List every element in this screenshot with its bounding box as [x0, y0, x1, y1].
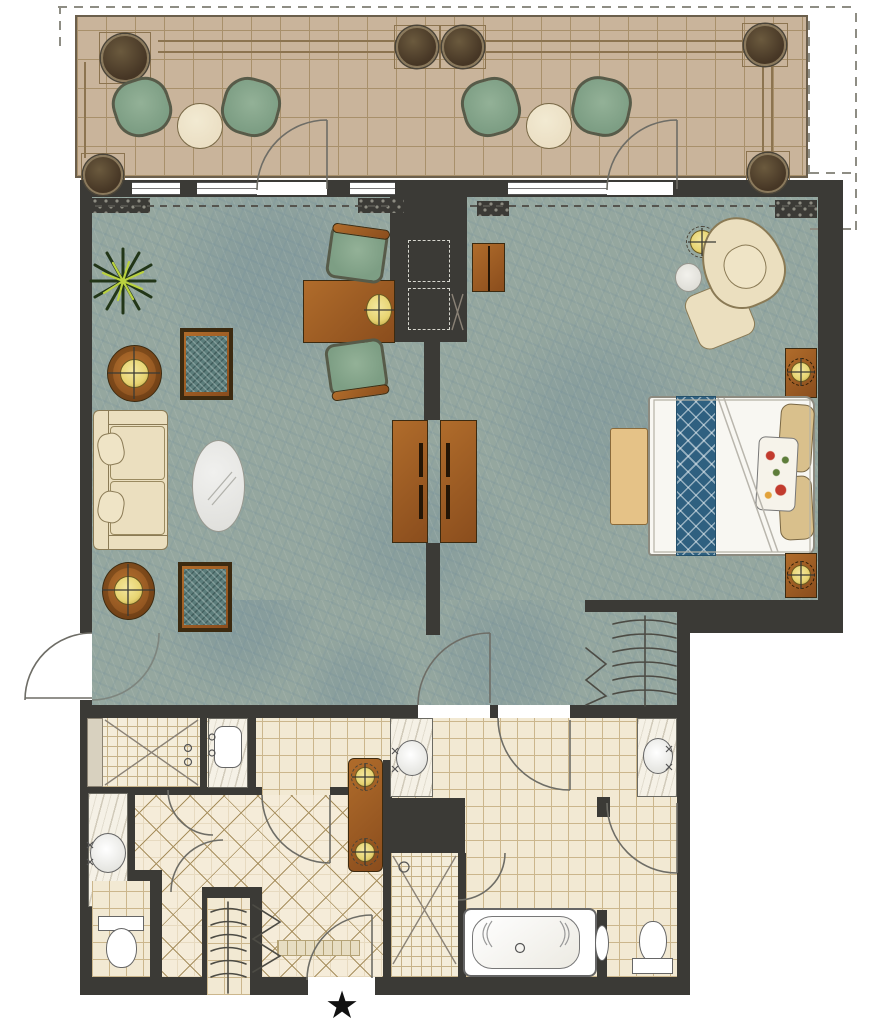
- lamp-crosshairs: [102, 228, 815, 865]
- master-bath-door: [498, 718, 570, 790]
- faucet: [209, 750, 215, 756]
- bedroom-closet-hangers: [613, 616, 676, 706]
- tub-water-marks: [483, 921, 569, 947]
- faucet-crosses: [87, 746, 672, 865]
- bed-linework: [208, 398, 810, 552]
- floor-plan: ★: [0, 0, 871, 1024]
- guest-shower-door: [168, 790, 213, 835]
- entry-door: [307, 915, 372, 980]
- faucet: [209, 734, 215, 740]
- guest-bath-door: [262, 795, 330, 863]
- linen-closet-hangers: [211, 902, 246, 993]
- crosshair-lines: [102, 228, 815, 865]
- entry-star: ★: [322, 986, 362, 1024]
- plumbing-fixtures: [87, 734, 672, 953]
- table-shine: [208, 472, 236, 505]
- niche-x: [452, 294, 463, 330]
- toilet-room-door: [607, 803, 677, 873]
- duvet-fold: [718, 398, 778, 552]
- living-hall-door: [418, 633, 490, 705]
- connecting-door-inner: [92, 633, 159, 700]
- master-shower-door: [458, 853, 505, 900]
- shower-valve: [185, 759, 192, 766]
- linework-overlay: [0, 0, 871, 1024]
- terrace-door-bedroom: [607, 120, 677, 190]
- bifold-door-linen-closet: [253, 905, 280, 972]
- shower-glass-marks: [105, 294, 463, 964]
- wc-door: [171, 840, 223, 892]
- potted-plant: [91, 249, 155, 313]
- shower-valve: [185, 745, 192, 752]
- guest-shower-x: [105, 720, 198, 785]
- terrace-door-living: [257, 120, 327, 190]
- shower-head: [399, 862, 409, 872]
- connecting-door-outer: [25, 633, 92, 700]
- bifold-door-bedroom-closet: [586, 648, 606, 705]
- tub-drain: [516, 944, 525, 953]
